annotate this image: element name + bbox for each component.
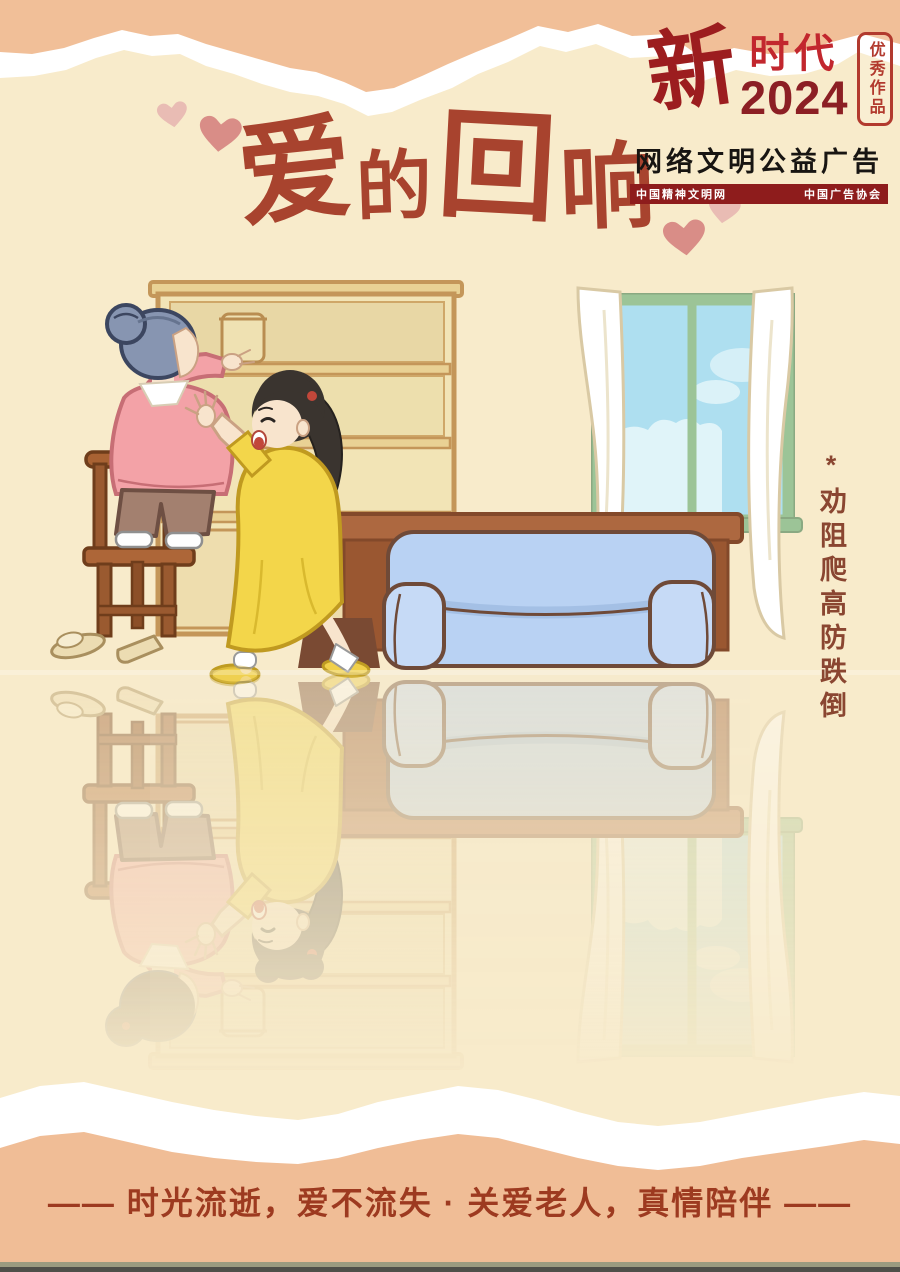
footer-strip-olive <box>0 1262 900 1267</box>
title-char-2: 的 <box>355 149 434 228</box>
bottom-slogan: —— 时光流逝，爱不流失 · 关爱老人，真情陪伴 —— <box>0 1178 900 1224</box>
organizer-bar: 中国精神文明网 中国广告协会 <box>630 184 888 204</box>
living-room-scene <box>49 282 802 683</box>
floor-reflection <box>49 667 802 1070</box>
title-char-1: 爱 <box>232 110 357 235</box>
poster-love-echo: 新 时代 2024 优秀作品 网络文明公益广告 中国精神文明网 中国广告协会 爱… <box>0 0 900 1272</box>
organizer-right: 中国广告协会 <box>804 186 882 202</box>
badge-brand-char: 新 <box>643 24 742 119</box>
badge-era-year: 时代 2024 <box>740 34 849 121</box>
badge-top-row: 新 时代 2024 优秀作品 <box>630 30 888 134</box>
footer-strip-dark <box>0 1267 900 1272</box>
sofa <box>384 532 714 668</box>
poster-title: 爱 的 回 响 <box>238 116 654 234</box>
campaign-badge: 新 时代 2024 优秀作品 网络文明公益广告 中国精神文明网 中国广告协会 <box>630 30 888 204</box>
organizer-left: 中国精神文明网 <box>636 186 727 202</box>
title-char-3: 回 <box>435 107 559 231</box>
safety-side-note: *劝阻爬高防跌倒 <box>817 450 844 725</box>
excellence-seal: 优秀作品 <box>857 32 893 126</box>
campaign-line: 网络文明公益广告 <box>630 140 888 179</box>
badge-brand-word: 时代 <box>749 34 839 74</box>
floor-sheen <box>0 670 900 675</box>
badge-year: 2024 <box>740 76 849 121</box>
